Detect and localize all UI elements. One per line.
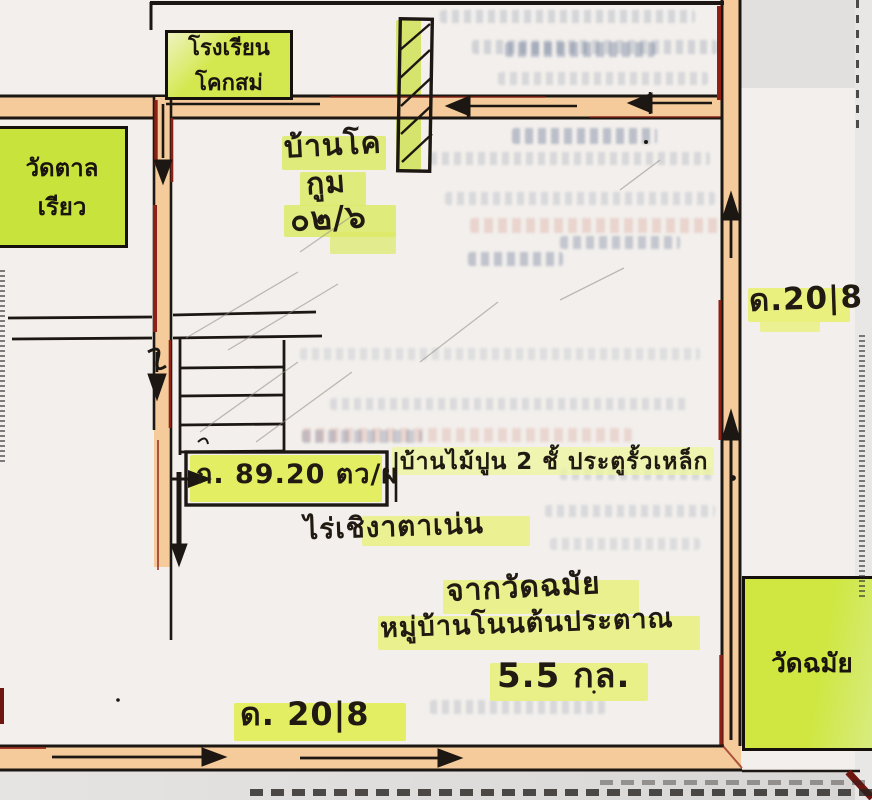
bottom-edge-dashed-line-2	[600, 780, 872, 785]
distance-label: 5.5 กล.	[497, 659, 630, 695]
ban-kho-label-line3: ๐๒/๖	[289, 200, 367, 238]
farm-label: ไร่เชิงาตาเน่น	[304, 509, 485, 545]
school-label-line1: โรงเรียน	[188, 30, 270, 65]
road-bottom-number-label: ด. 20|8	[240, 698, 370, 732]
temple-bottom-right-box: วัดฉมัย	[742, 576, 872, 751]
bottom-edge-dashed-line	[250, 789, 872, 796]
temple-left-label-line2: เรียว	[38, 187, 87, 226]
ban-kho-label-line1: บ้านโค	[283, 127, 382, 164]
temple-left-box: วัดตาล เรียว	[0, 126, 128, 248]
plot-area-label: ก. 89.20 ตว/ผ	[196, 461, 398, 489]
right-edge-microtext	[859, 335, 865, 600]
temple-bottom-right-label: วัดฉมัย	[771, 643, 853, 684]
left-edge-microtext	[0, 270, 5, 465]
temple-left-label-line1: วัดตาล	[26, 148, 99, 187]
school-box: โรงเรียน โคกสม่	[165, 30, 293, 100]
house-description-label: บ้านไม้ปูน 2 ชั้ ประตูรั้วเหล็ก	[400, 450, 708, 474]
pencil-scribbles	[186, 160, 660, 442]
route-from-label: จากวัดฉมัย	[445, 568, 601, 608]
hand-drawn-location-map: โรงเรียน โคกสม่ วัดตาล เรียว วัดฉมัย บ้า…	[0, 0, 872, 800]
road-top	[0, 96, 724, 118]
ban-kho-label-line2: กูม	[305, 167, 347, 201]
right-edge-dashed-line	[856, 0, 859, 135]
road-right-number-label: ด.20|8	[748, 281, 863, 318]
school-label-line2: โคกสม่	[195, 65, 263, 100]
